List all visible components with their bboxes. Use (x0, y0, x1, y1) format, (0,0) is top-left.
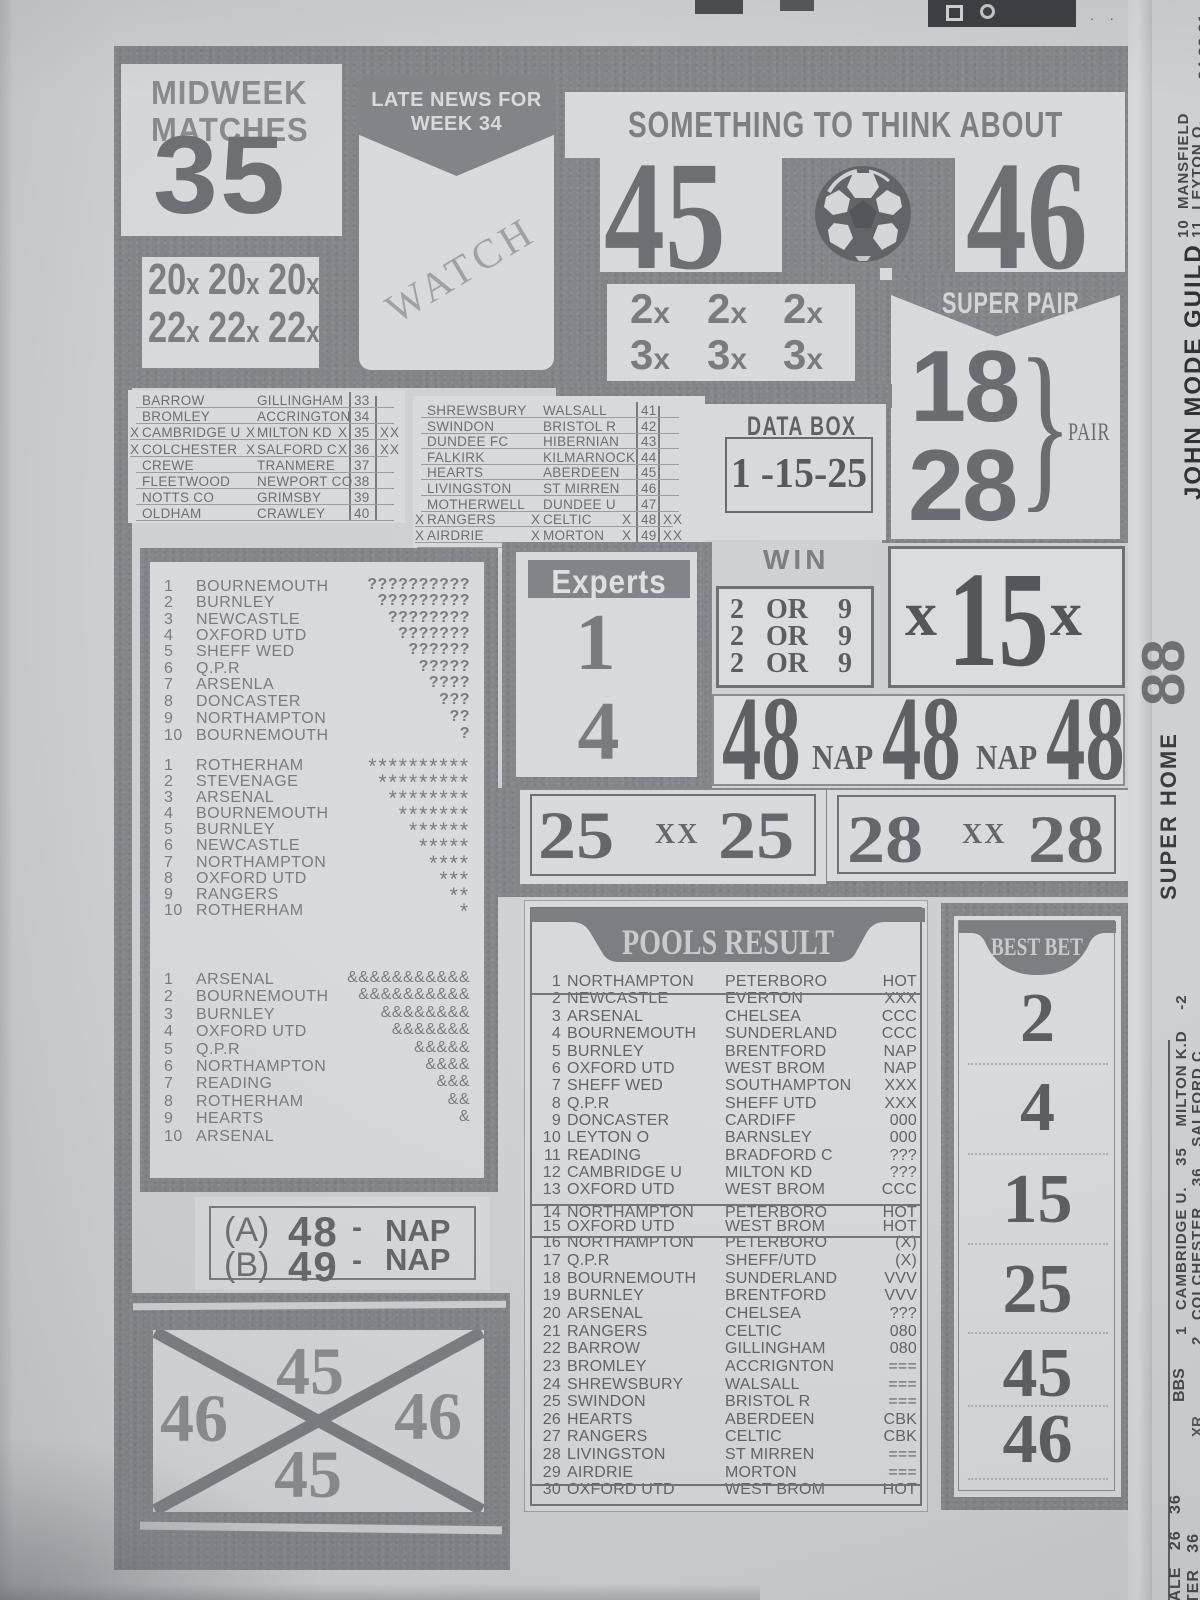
svg-text:BEST BET: BEST BET (991, 934, 1083, 961)
